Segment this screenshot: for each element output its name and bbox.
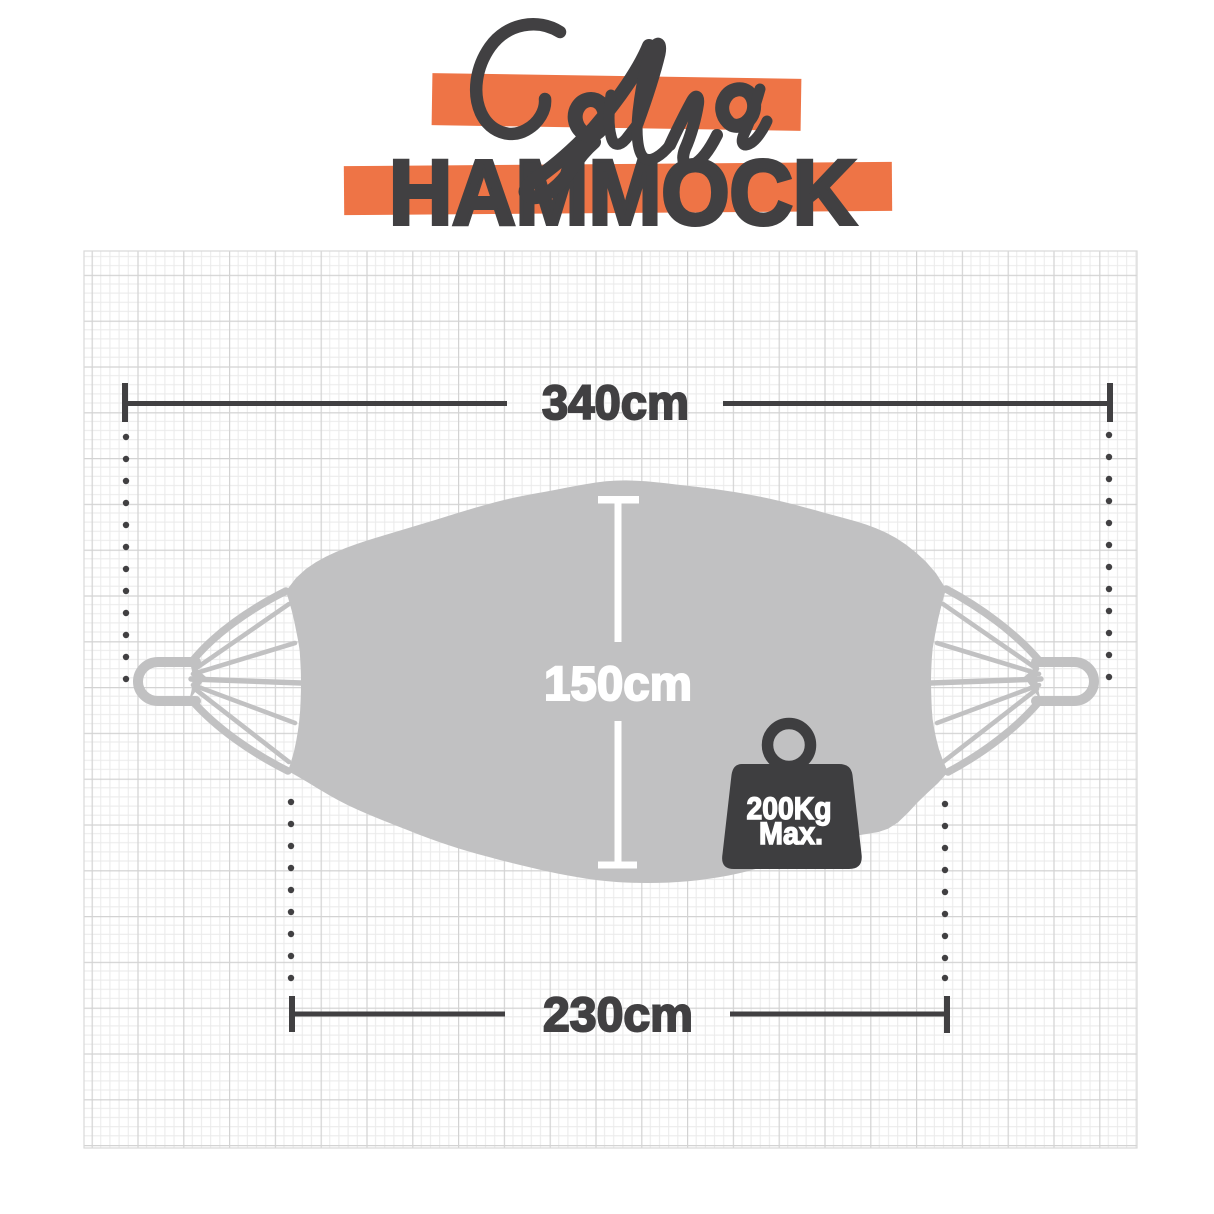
svg-text:230cm: 230cm <box>543 989 693 1042</box>
svg-text:150cm: 150cm <box>544 658 692 711</box>
svg-text:340cm: 340cm <box>542 377 689 430</box>
svg-text:HAMMOCK: HAMMOCK <box>389 142 856 244</box>
svg-text:Max.: Max. <box>759 815 823 851</box>
